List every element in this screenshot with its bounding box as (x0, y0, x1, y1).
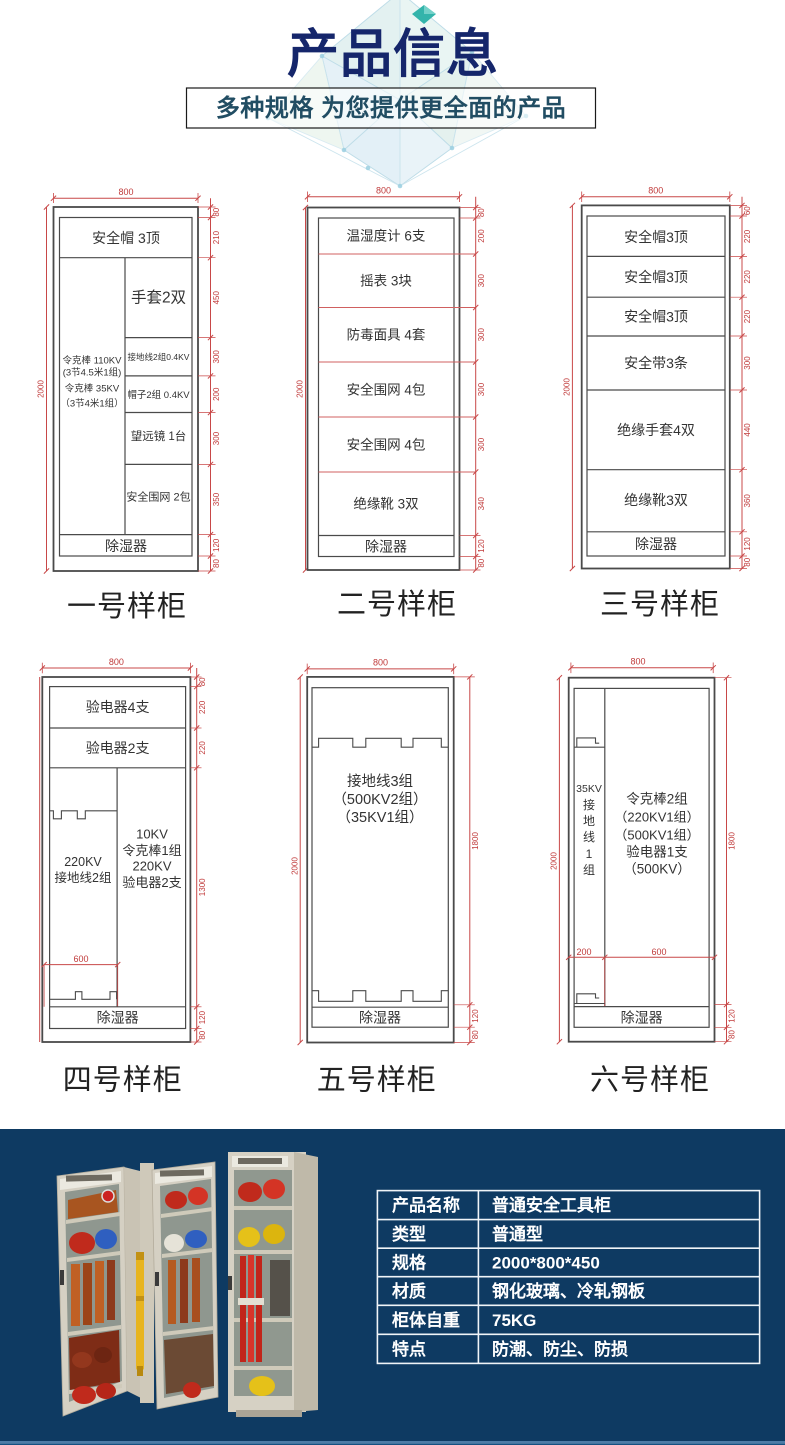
svg-text:80: 80 (727, 1030, 736, 1039)
svg-text:安全帽3顶: 安全帽3顶 (624, 229, 688, 245)
svg-text:1800: 1800 (471, 832, 480, 850)
svg-text:10KV: 10KV (136, 827, 168, 842)
svg-text:除湿器: 除湿器 (359, 1010, 401, 1026)
svg-text:80: 80 (198, 1030, 207, 1039)
svg-text:80: 80 (477, 558, 486, 567)
svg-text:安全带3条: 安全带3条 (624, 355, 688, 371)
svg-text:令克棒2组: 令克棒2组 (626, 792, 688, 807)
svg-text:除湿器: 除湿器 (105, 538, 147, 554)
svg-text:接: 接 (583, 797, 595, 812)
svg-text:220KV: 220KV (132, 859, 171, 874)
svg-text:220: 220 (198, 700, 207, 714)
svg-text:令克棒 35KV: 令克棒 35KV (65, 383, 120, 395)
svg-text:地: 地 (583, 814, 595, 828)
svg-text:800: 800 (373, 658, 388, 668)
svg-text:360: 360 (743, 494, 752, 508)
svg-text:80: 80 (212, 207, 221, 216)
svg-text:柜体自重: 柜体自重 (392, 1310, 460, 1330)
svg-text:安全围网 4包: 安全围网 4包 (347, 382, 426, 398)
svg-text:除湿器: 除湿器 (365, 539, 407, 555)
svg-text:手套2双: 手套2双 (131, 289, 186, 307)
svg-text:440: 440 (743, 423, 752, 437)
svg-text:220: 220 (198, 741, 207, 755)
svg-text:防毒面具 4套: 防毒面具 4套 (347, 328, 426, 343)
svg-text:300: 300 (477, 382, 486, 396)
svg-text:绝缘靴 3双: 绝缘靴 3双 (353, 497, 418, 512)
svg-text:安全帽 3顶: 安全帽 3顶 (92, 230, 160, 246)
svg-text:六号样柜: 六号样柜 (590, 1064, 710, 1097)
svg-text:600: 600 (73, 954, 88, 964)
svg-text:接地线3组: 接地线3组 (347, 773, 413, 790)
svg-text:（500KV1组）: （500KV1组） (614, 828, 699, 843)
svg-text:（35KV1组）: （35KV1组） (336, 809, 423, 826)
svg-text:2000: 2000 (563, 378, 572, 396)
svg-text:多种规格 为您提供更全面的产品: 多种规格 为您提供更全面的产品 (216, 94, 566, 122)
svg-text:35KV: 35KV (576, 783, 602, 795)
svg-text:300: 300 (477, 327, 486, 341)
svg-text:2000*800*450: 2000*800*450 (492, 1254, 600, 1273)
svg-text:除湿器: 除湿器 (635, 536, 677, 552)
svg-text:2000: 2000 (296, 380, 305, 398)
svg-text:80: 80 (743, 557, 752, 566)
svg-text:帽子2组 0.4KV: 帽子2组 0.4KV (127, 389, 190, 401)
svg-text:除湿器: 除湿器 (97, 1010, 139, 1026)
svg-text:300: 300 (477, 273, 486, 287)
svg-text:接地线2组: 接地线2组 (55, 870, 112, 885)
svg-text:80: 80 (471, 1030, 480, 1039)
svg-text:300: 300 (212, 431, 221, 445)
svg-text:120: 120 (198, 1010, 207, 1024)
svg-text:120: 120 (212, 538, 221, 552)
svg-text:1: 1 (586, 847, 593, 861)
svg-text:普通型: 普通型 (492, 1224, 543, 1244)
svg-text:三号样柜: 三号样柜 (600, 588, 720, 621)
svg-text:一号样柜: 一号样柜 (67, 590, 187, 623)
svg-text:（500KV）: （500KV） (623, 862, 691, 877)
svg-text:120: 120 (743, 537, 752, 551)
svg-text:特点: 特点 (392, 1339, 426, 1359)
svg-text:200: 200 (477, 229, 486, 243)
svg-text:210: 210 (212, 230, 221, 244)
svg-text:2000: 2000 (37, 380, 46, 398)
svg-text:除湿器: 除湿器 (621, 1010, 663, 1026)
svg-text:80: 80 (198, 677, 207, 686)
svg-text:1300: 1300 (198, 878, 207, 896)
svg-text:验电器2支: 验电器2支 (86, 740, 150, 756)
svg-text:（220KV1组）: （220KV1组） (614, 810, 699, 825)
svg-text:800: 800 (648, 186, 663, 196)
svg-text:800: 800 (630, 657, 645, 667)
svg-text:300: 300 (743, 356, 752, 370)
svg-text:令克棒1组: 令克棒1组 (122, 843, 181, 858)
svg-text:验电器1支: 验电器1支 (626, 845, 688, 860)
svg-text:令克棒 110KV: 令克棒 110KV (63, 355, 123, 367)
svg-text:220KV: 220KV (64, 855, 102, 869)
svg-text:350: 350 (212, 492, 221, 506)
svg-text:二号样柜: 二号样柜 (337, 588, 457, 621)
svg-text:规格: 规格 (392, 1253, 427, 1273)
svg-text:300: 300 (212, 350, 221, 364)
svg-text:800: 800 (118, 187, 133, 197)
svg-text:普通安全工具柜: 普通安全工具柜 (492, 1195, 611, 1215)
svg-text:80: 80 (477, 208, 486, 217)
svg-text:安全帽3顶: 安全帽3顶 (624, 269, 688, 285)
svg-text:75KG: 75KG (492, 1311, 536, 1330)
svg-text:120: 120 (471, 1009, 480, 1023)
svg-text:200: 200 (212, 387, 221, 401)
svg-text:300: 300 (477, 437, 486, 451)
svg-text:钢化玻璃、冷轧钢板: 钢化玻璃、冷轧钢板 (492, 1281, 646, 1301)
svg-text:2000: 2000 (290, 857, 299, 875)
svg-text:1800: 1800 (727, 832, 736, 850)
svg-text:340: 340 (477, 496, 486, 510)
svg-text:产品信息: 产品信息 (287, 26, 499, 84)
svg-text:材质: 材质 (392, 1281, 426, 1301)
svg-text:（3节4米1组）: （3节4米1组） (60, 398, 123, 410)
svg-text:安全帽3顶: 安全帽3顶 (624, 309, 688, 325)
svg-text:(3节4.5米1组): (3节4.5米1组) (63, 367, 122, 379)
svg-text:温湿度计 6支: 温湿度计 6支 (347, 229, 426, 244)
svg-text:120: 120 (727, 1009, 736, 1023)
svg-text:450: 450 (212, 290, 221, 304)
svg-text:800: 800 (376, 186, 391, 196)
svg-text:80: 80 (212, 559, 221, 568)
svg-text:60: 60 (743, 206, 752, 215)
svg-text:220: 220 (743, 309, 752, 323)
svg-text:望远镜 1台: 望远镜 1台 (131, 429, 187, 443)
svg-text:五号样柜: 五号样柜 (317, 1064, 437, 1097)
svg-text:220: 220 (743, 229, 752, 243)
svg-text:800: 800 (109, 657, 124, 667)
svg-text:安全围网 2包: 安全围网 2包 (126, 490, 190, 504)
svg-text:120: 120 (477, 539, 486, 553)
svg-text:防潮、防尘、防损: 防潮、防尘、防损 (492, 1339, 628, 1359)
svg-text:600: 600 (651, 947, 666, 957)
svg-text:四号样柜: 四号样柜 (63, 1064, 183, 1097)
svg-text:组: 组 (583, 863, 595, 877)
svg-text:验电器4支: 验电器4支 (86, 699, 150, 715)
svg-text:2000: 2000 (550, 852, 559, 870)
svg-text:线: 线 (583, 830, 595, 844)
svg-text:产品名称: 产品名称 (392, 1195, 460, 1215)
svg-text:绝缘手套4双: 绝缘手套4双 (617, 422, 695, 438)
svg-text:绝缘靴3双: 绝缘靴3双 (624, 492, 688, 508)
svg-text:验电器2支: 验电器2支 (122, 875, 181, 890)
svg-text:安全围网 4包: 安全围网 4包 (347, 437, 426, 453)
svg-text:摇表 3块: 摇表 3块 (360, 274, 412, 289)
svg-text:接地线2组0.4KV: 接地线2组0.4KV (128, 352, 190, 362)
svg-text:（500KV2组）: （500KV2组） (332, 791, 427, 808)
svg-text:220: 220 (743, 270, 752, 284)
svg-text:类型: 类型 (392, 1224, 426, 1244)
svg-text:200: 200 (576, 947, 591, 957)
